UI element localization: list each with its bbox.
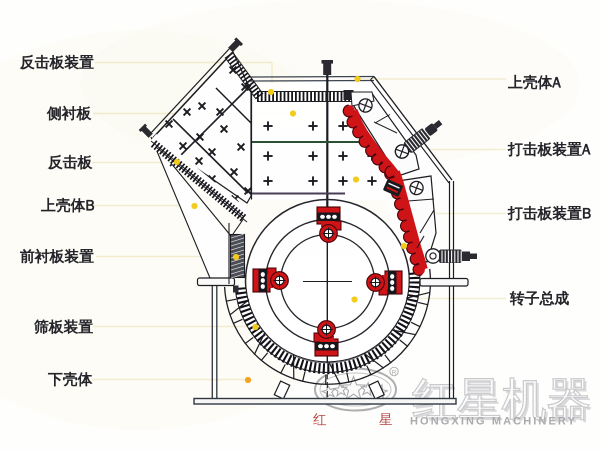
svg-text:HONGXING MACHINERY: HONGXING MACHINERY bbox=[410, 416, 577, 428]
svg-text:R: R bbox=[392, 369, 397, 376]
